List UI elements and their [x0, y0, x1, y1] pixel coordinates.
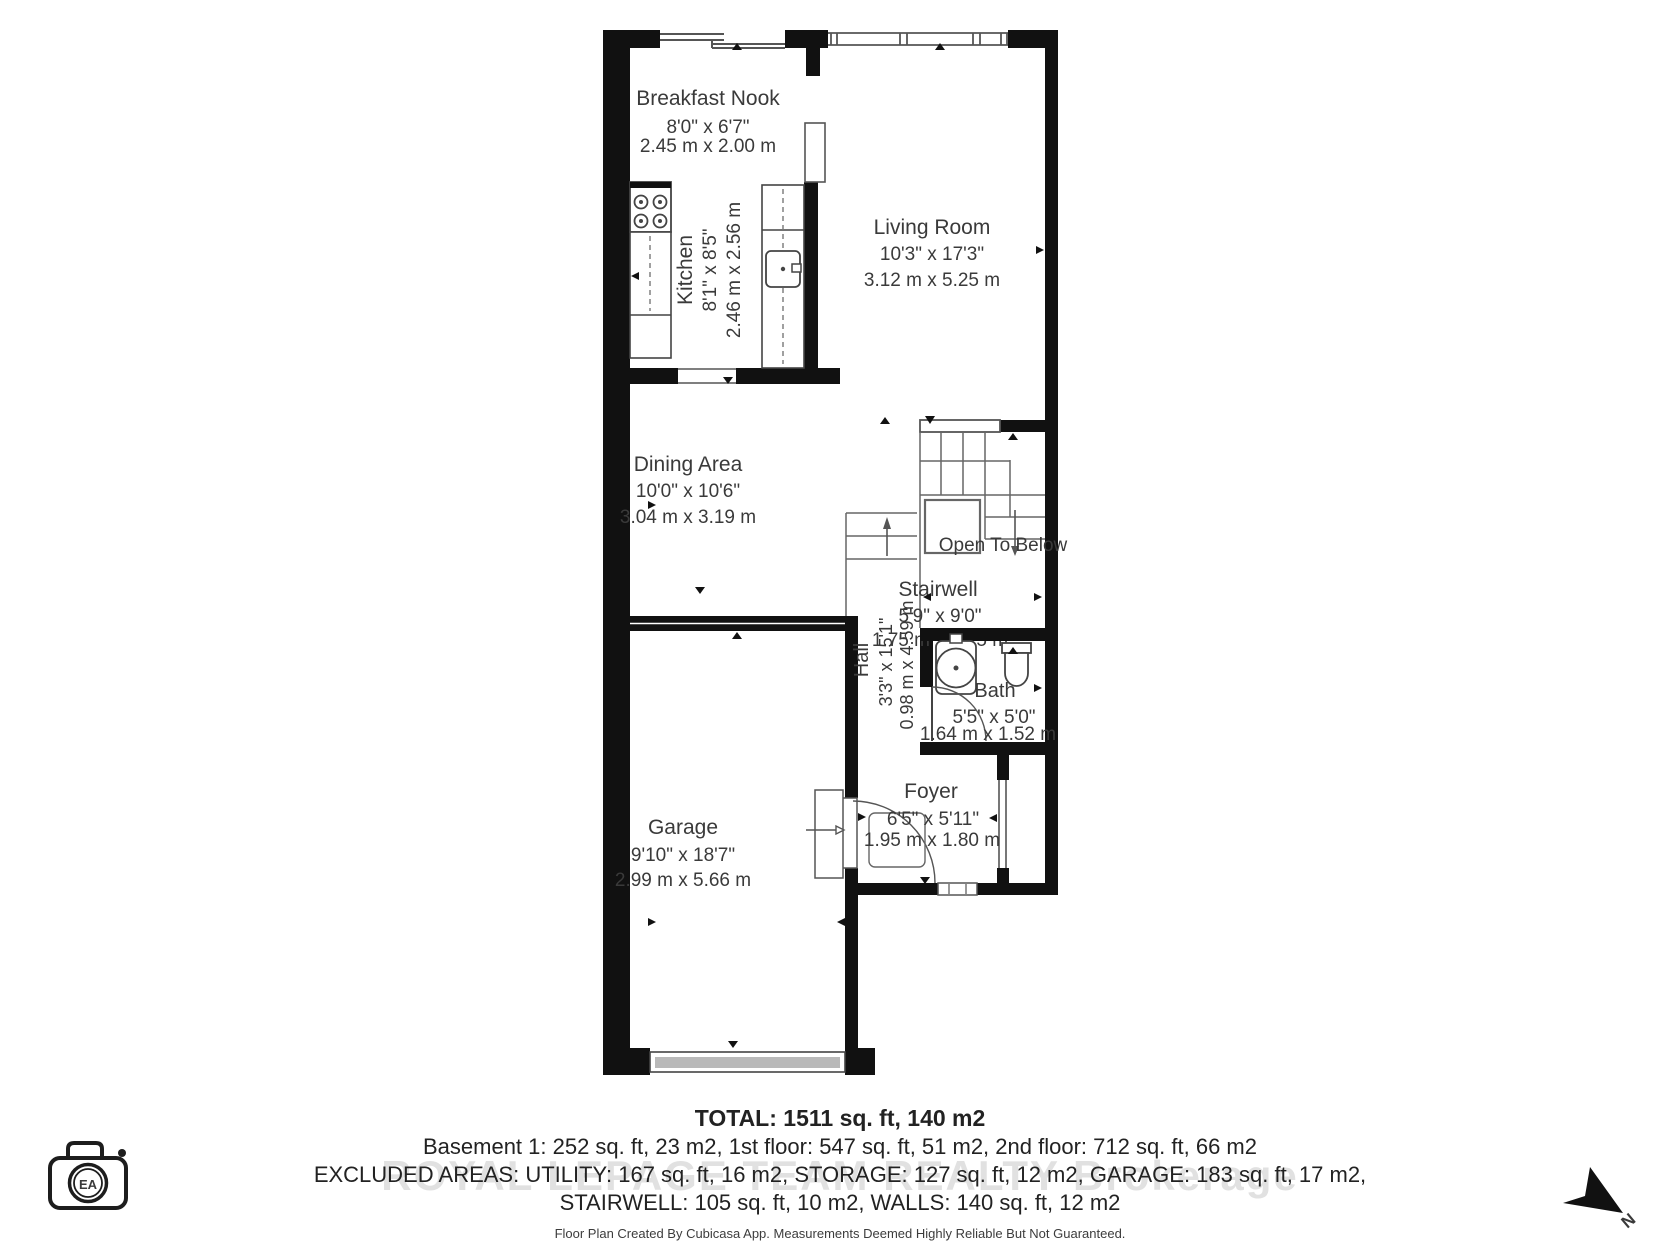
sink-icon [766, 251, 801, 287]
room-label-kitchen: Kitchen 8'1" x 8'5" 2.46 m x 2.56 m [674, 202, 745, 338]
svg-text:3.04 m x 3.19 m: 3.04 m x 3.19 m [620, 507, 756, 528]
svg-text:3'3" x 15'1": 3'3" x 15'1" [876, 618, 896, 707]
svg-text:9'10" x 18'7": 9'10" x 18'7" [631, 845, 735, 866]
svg-text:3.12 m x 5.25 m: 3.12 m x 5.25 m [864, 270, 1000, 291]
summary-disclaimer: Floor Plan Created By Cubicasa App. Meas… [0, 1226, 1680, 1241]
svg-text:Hall: Hall [851, 643, 873, 677]
svg-text:1.64 m x 1.52 m: 1.64 m x 1.52 m [920, 724, 1056, 745]
svg-text:8'1" x 8'5": 8'1" x 8'5" [700, 228, 721, 311]
stove-icon [630, 182, 671, 232]
room-label-hall: Hall 3'3" x 15'1" 0.98 m x 4.59 m [851, 600, 917, 729]
room-label-dining-area: Dining Area 10'0" x 10'6" 3.04 m x 3.19 … [620, 453, 756, 528]
svg-text:6'5" x 5'11": 6'5" x 5'11" [887, 809, 979, 830]
area-summary: TOTAL: 1511 sq. ft, 140 m2 Basement 1: 2… [0, 1104, 1680, 1241]
svg-text:Kitchen: Kitchen [674, 235, 697, 305]
svg-text:10'0" x 10'6": 10'0" x 10'6" [636, 481, 740, 502]
room-label-breakfast-nook: Breakfast Nook 8'0" x 6'7" 2.45 m x 2.00… [636, 87, 780, 157]
garage-door-icon [650, 1052, 845, 1072]
svg-text:2.46 m x 2.56 m: 2.46 m x 2.56 m [724, 202, 745, 338]
kitchen-counter [630, 232, 671, 358]
room-label-living-room: Living Room 10'3" x 17'3" 3.12 m x 5.25 … [864, 216, 1000, 291]
svg-text:Living Room: Living Room [874, 216, 991, 239]
room-label-foyer: Foyer 6'5" x 5'11" 1.95 m x 1.80 m [864, 780, 1000, 851]
svg-text:0.98 m x 4.59 m: 0.98 m x 4.59 m [897, 600, 917, 729]
svg-text:2.45 m x 2.00 m: 2.45 m x 2.00 m [640, 136, 776, 157]
pantry-cabinet [805, 123, 825, 182]
kitchen-island [762, 185, 804, 368]
room-label-garage: Garage 9'10" x 18'7" 2.99 m x 5.66 m [615, 816, 751, 891]
svg-text:Breakfast Nook: Breakfast Nook [636, 87, 780, 110]
floor-plan-page: ROYAL LEPAGE TEAM REALTY Brokerage [0, 0, 1680, 1260]
svg-text:10'3" x 17'3": 10'3" x 17'3" [880, 244, 984, 265]
foyer-window-icon [999, 780, 1006, 868]
sink-icon-bath [936, 634, 976, 694]
bath-top-wall [920, 628, 1058, 641]
svg-text:Foyer: Foyer [904, 780, 958, 803]
svg-text:8'0" x 6'7": 8'0" x 6'7" [666, 117, 749, 138]
svg-text:2.99 m x 5.66 m: 2.99 m x 5.66 m [615, 870, 751, 891]
garage-landing [806, 790, 844, 878]
summary-floors: Basement 1: 252 sq. ft, 23 m2, 1st floor… [0, 1133, 1680, 1161]
summary-excluded-2: STAIRWELL: 105 sq. ft, 10 m2, WALLS: 140… [0, 1189, 1680, 1217]
svg-text:Garage: Garage [648, 816, 718, 839]
stair-rail-window [920, 420, 1000, 432]
summary-total: TOTAL: 1511 sq. ft, 140 m2 [0, 1104, 1680, 1133]
svg-text:1.95 m x 1.80 m: 1.95 m x 1.80 m [864, 830, 1000, 851]
open-to-below-label: Open To Below [939, 535, 1068, 556]
svg-text:Bath: Bath [974, 680, 1015, 702]
front-door-icon [938, 883, 977, 895]
summary-excluded-1: EXCLUDED AREAS: UTILITY: 167 sq. ft, 16 … [0, 1161, 1680, 1189]
svg-text:Dining Area: Dining Area [634, 453, 743, 476]
floor-plan-drawing: Stairwell 5'9" x 9'0" 1.75 m x 2.75 m [0, 0, 1680, 1260]
sliding-door-icon [660, 30, 785, 48]
living-room-window-icon [828, 30, 1008, 48]
svg-text:Stairwell: Stairwell [898, 578, 977, 601]
